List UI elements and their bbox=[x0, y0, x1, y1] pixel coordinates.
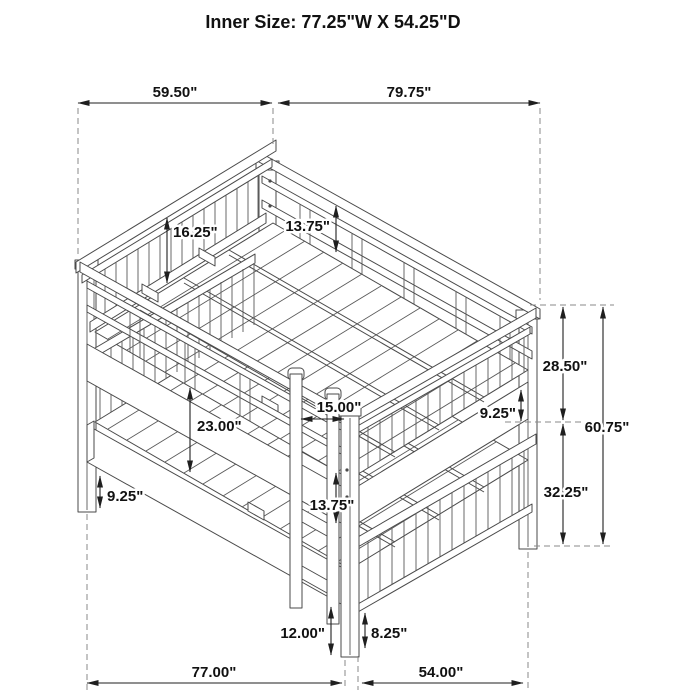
dim-lower-section-height: 32.25" bbox=[544, 484, 589, 501]
inner-size-title: Inner Size: 77.25"W X 54.25"D bbox=[205, 12, 460, 32]
bunk-bed-dimension-diagram: Inner Size: 77.25"W X 54.25"D 59.50" 79.… bbox=[0, 0, 700, 700]
dim-upper-section-height: 28.50" bbox=[543, 358, 588, 375]
dim-total-height: 60.75" bbox=[585, 419, 630, 436]
front-post bbox=[338, 407, 361, 657]
dim-back-rail-height: 13.75" bbox=[285, 218, 330, 235]
dim-upper-side-rail-height: 9.25" bbox=[480, 405, 516, 422]
dim-upper-left-span: 59.50" bbox=[153, 84, 198, 101]
dim-footboard-floor-clearance: 8.25" bbox=[371, 625, 407, 642]
dim-guardrail-height: 16.25" bbox=[173, 224, 218, 241]
dim-floor-length: 77.00" bbox=[192, 664, 237, 681]
dim-lower-leg-height: 9.25" bbox=[107, 488, 143, 505]
diagram-canvas: Inner Size: 77.25"W X 54.25"D 59.50" 79.… bbox=[0, 0, 700, 700]
dim-bunk-clearance: 23.00" bbox=[197, 418, 242, 435]
dim-lower-rail-floor-clearance: 12.00" bbox=[280, 625, 325, 642]
dim-floor-depth: 54.00" bbox=[419, 664, 464, 681]
dim-ladder-width: 15.00" bbox=[317, 399, 362, 416]
dim-upper-right-span: 79.75" bbox=[387, 84, 432, 101]
left-post bbox=[75, 260, 98, 512]
dim-ladder-rung-spacing: 13.75" bbox=[310, 497, 355, 514]
